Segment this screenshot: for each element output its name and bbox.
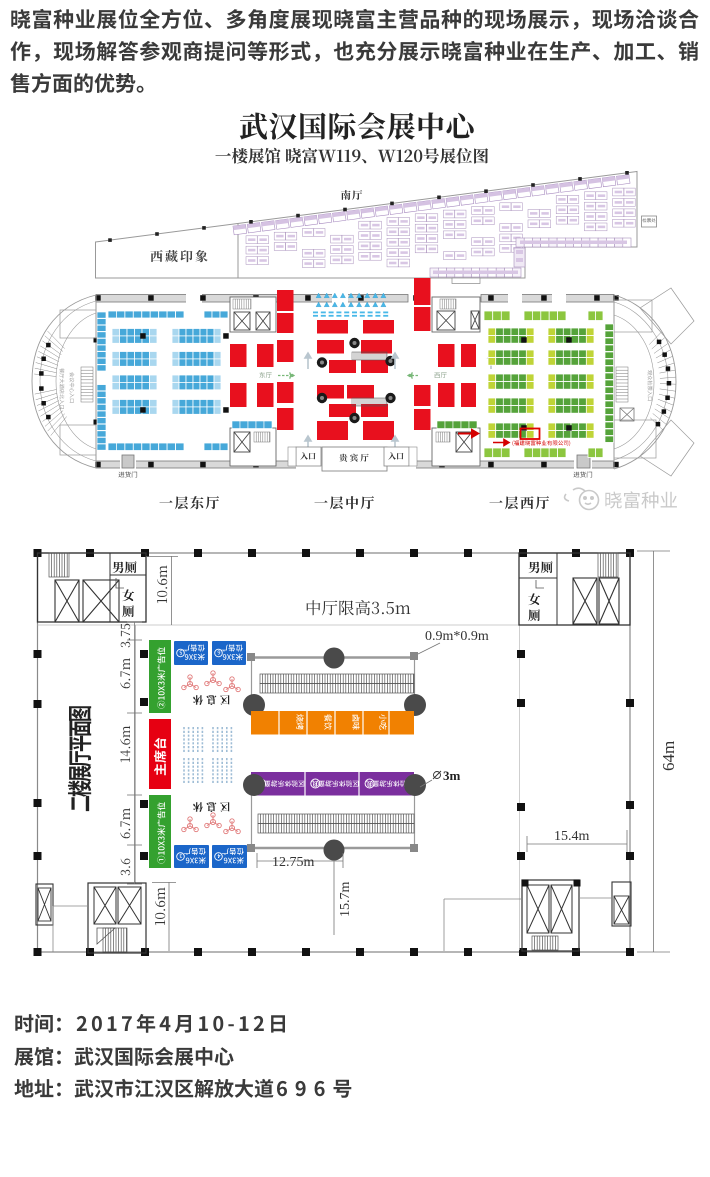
svg-text:64m: 64m xyxy=(659,741,678,771)
svg-text:12.75m: 12.75m xyxy=(272,855,315,870)
svg-text:3m: 3m xyxy=(443,768,461,783)
svg-text:0.9m*0.9m: 0.9m*0.9m xyxy=(425,629,489,644)
svg-text:15.4m: 15.4m xyxy=(554,829,590,844)
svg-text:15.7m: 15.7m xyxy=(338,882,353,918)
